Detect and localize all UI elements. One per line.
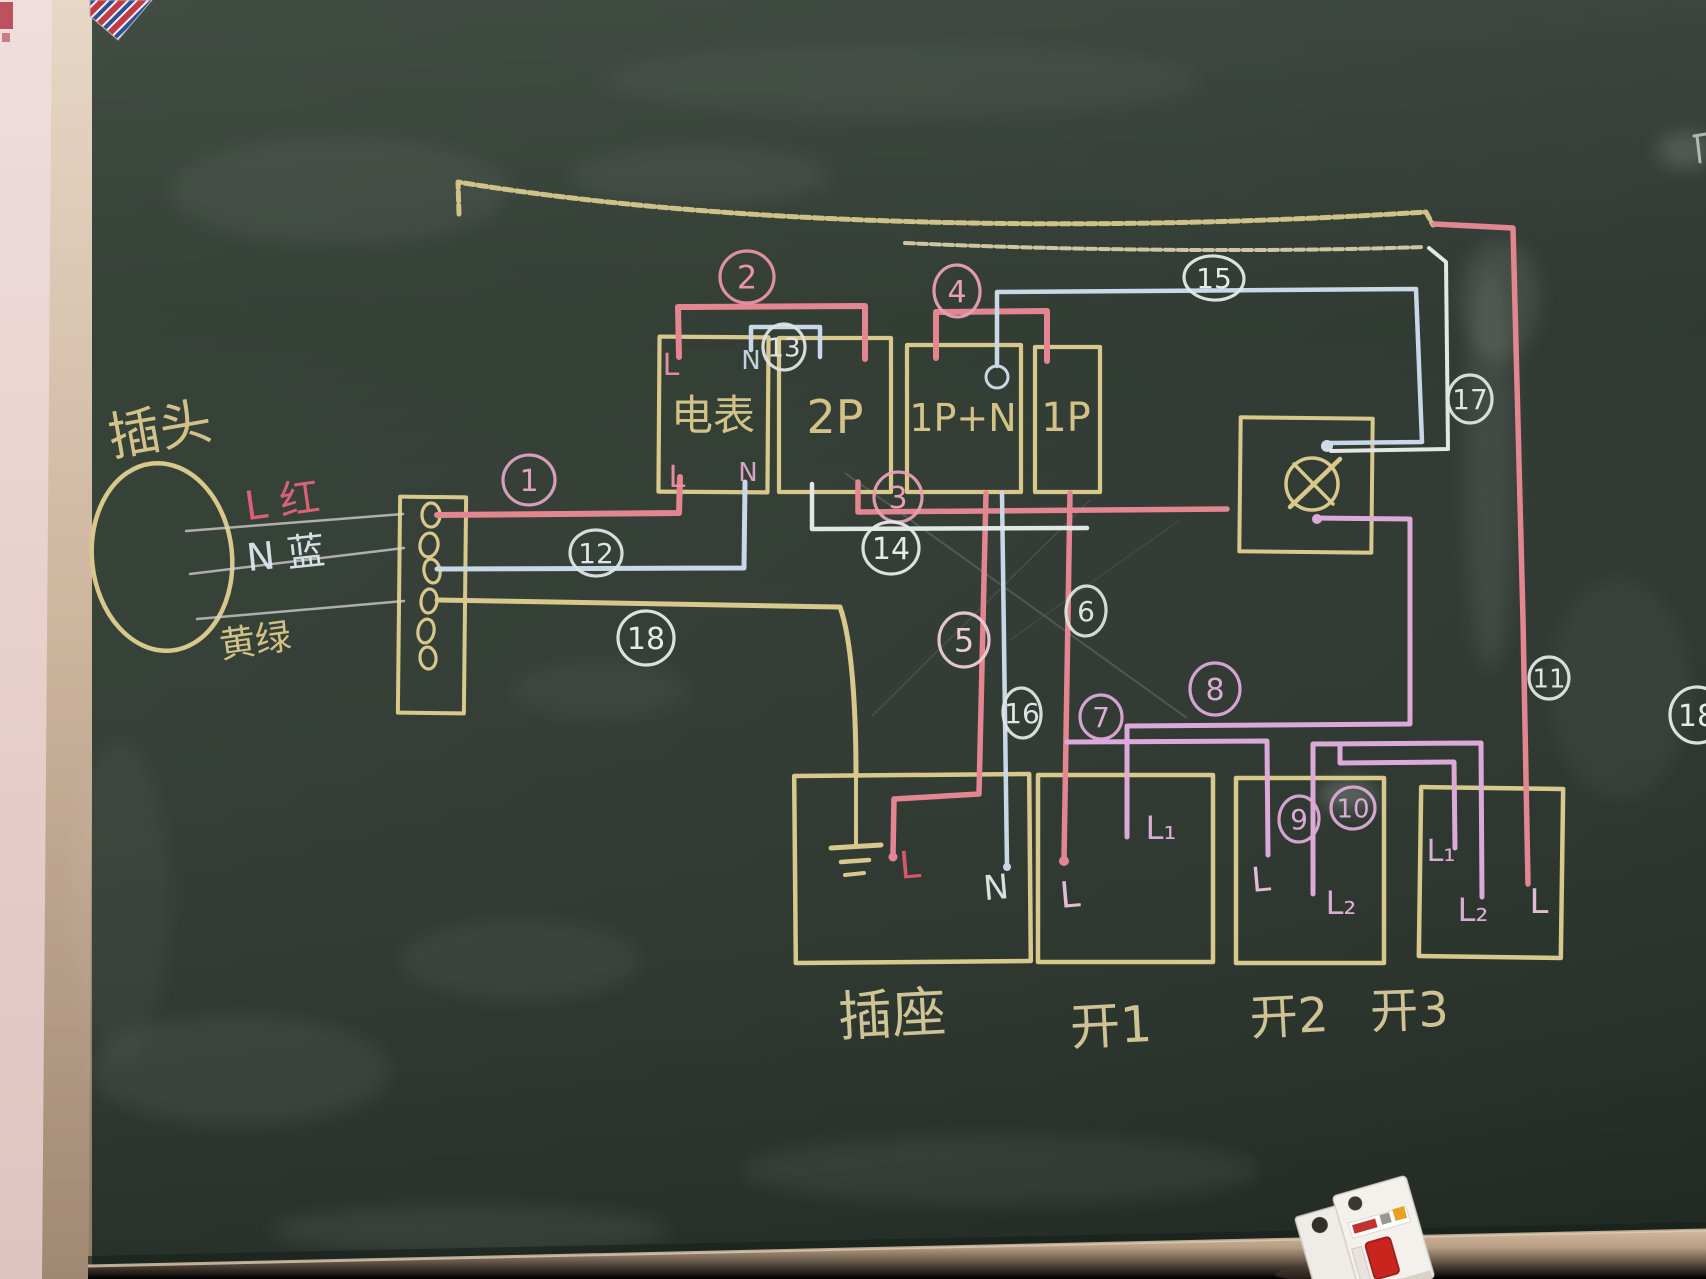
badge-number: 15 <box>1196 262 1232 295</box>
meter-n-bottom: N <box>738 458 757 488</box>
badge-number: 2 <box>737 259 757 297</box>
socket-n: N <box>982 867 1011 909</box>
badge-number: 1 <box>519 464 538 499</box>
badge-number: 6 <box>1077 595 1095 628</box>
socket-name: 插座 <box>836 980 947 1049</box>
switch3-name: 开3 <box>1369 982 1449 1041</box>
meter-l-top: L <box>663 348 680 383</box>
badge-number: 11 <box>1532 664 1565 694</box>
wall-red-mark <box>0 2 13 29</box>
badge-number: 13 <box>767 333 800 363</box>
switch2-l2: L₂ <box>1326 884 1357 922</box>
switch1-l: L <box>1058 874 1082 917</box>
badge-number: 18 <box>627 622 665 657</box>
badge-number: 14 <box>872 532 910 567</box>
switch3-l: L <box>1530 882 1549 922</box>
badge-number: 8 <box>1205 673 1224 708</box>
breaker-1pn-name: 1P+N <box>909 396 1016 440</box>
socket-l: L <box>897 842 922 888</box>
switch2-name: 开2 <box>1248 987 1329 1047</box>
meter-l-bottom: L <box>669 460 686 495</box>
badge-number: 7 <box>1092 701 1110 734</box>
badge-number: 5 <box>954 622 974 660</box>
switch1-name: 开1 <box>1069 995 1154 1057</box>
badge-17-16: 17 <box>1448 375 1492 423</box>
wiring-diagram-svg: 12345678910111213141516171818 插头L 红N 蓝黄绿… <box>0 0 1706 1279</box>
badge-number: 3 <box>888 481 907 516</box>
blackboard-photo: 12345678910111213141516171818 插头L 红N 蓝黄绿… <box>0 0 1706 1279</box>
badge-number: 9 <box>1290 803 1308 836</box>
badge-number: 17 <box>1452 383 1488 416</box>
meter-n-top: N <box>741 346 760 376</box>
switch2-l: L <box>1250 859 1272 901</box>
wire-neutral-label: N 蓝 <box>244 528 327 580</box>
badge-number: 10 <box>1336 794 1369 824</box>
badge-number: 12 <box>578 537 614 570</box>
wall-red-mark-2 <box>2 33 10 42</box>
badge-number: 16 <box>1004 697 1040 730</box>
breaker-1p-name: 1P <box>1041 395 1091 441</box>
badge-number: 18 <box>1678 699 1706 734</box>
switch1-l1: L₁ <box>1146 809 1177 847</box>
switch3-l2: L₂ <box>1458 891 1489 929</box>
badge-number: 4 <box>947 275 966 310</box>
breaker-2p-name: 2P <box>806 390 863 444</box>
switch3-l1: L₁ <box>1427 834 1456 869</box>
meter-name: 电表 <box>671 391 755 440</box>
